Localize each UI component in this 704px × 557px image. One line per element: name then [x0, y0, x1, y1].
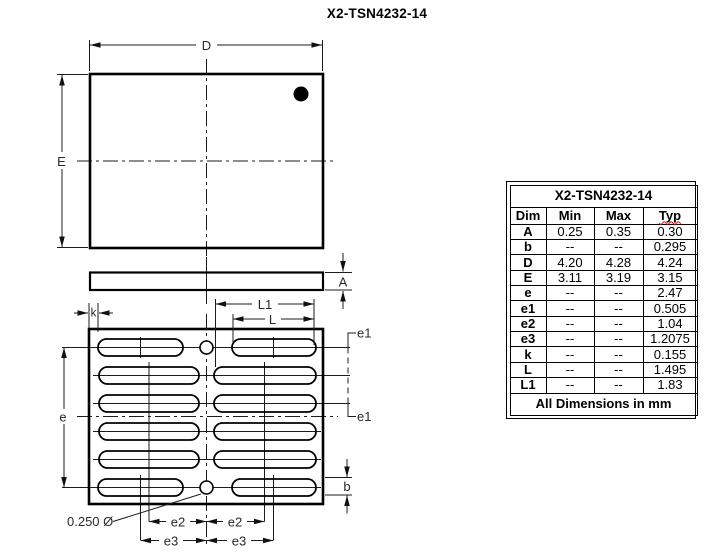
max-cell: 3.19 [594, 270, 643, 285]
index-hole-bottom [200, 481, 213, 494]
min-cell: 4.20 [546, 255, 594, 270]
min-cell: -- [546, 332, 594, 347]
max-cell: 4.28 [594, 255, 643, 270]
min-cell: -- [546, 239, 594, 254]
table-row: e3----1.2075 [510, 332, 697, 347]
dim-cell: e [510, 285, 546, 300]
dim-cell: k [510, 347, 546, 362]
typ-cell: 4.24 [643, 255, 697, 270]
dim-e1: e1 e1 [348, 326, 371, 425]
max-cell: -- [594, 316, 643, 331]
table-row: L1----1.83 [510, 378, 697, 393]
table-row: e2----1.04 [510, 316, 697, 331]
side-view: A [90, 253, 352, 309]
dim-cell: e2 [510, 316, 546, 331]
min-cell: -- [546, 285, 594, 300]
dimensions-table-frame: X2-TSN4232-14 Dim Min Max Typ A0.250.350… [506, 181, 696, 419]
max-cell: -- [594, 378, 643, 393]
pin1-marker-dot [294, 87, 309, 102]
table-header-row: Dim Min Max Typ [510, 207, 697, 224]
typ-cell: 0.295 [643, 239, 697, 254]
max-cell: 0.35 [594, 224, 643, 239]
max-cell: -- [594, 347, 643, 362]
max-cell: -- [594, 301, 643, 316]
table-row: e----2.47 [510, 285, 697, 300]
min-cell: -- [546, 347, 594, 362]
dim-cell: e3 [510, 332, 546, 347]
dim-e: e [56, 348, 72, 488]
dim-label-e-cap: E [57, 154, 66, 169]
dim-cell: b [510, 239, 546, 254]
typ-cell: 3.15 [643, 270, 697, 285]
table-row: k----0.155 [510, 347, 697, 362]
max-cell: -- [594, 332, 643, 347]
index-hole-top [200, 341, 213, 354]
dim-b: b [325, 459, 352, 514]
dim-label-e2-left: e2 [171, 515, 185, 530]
bottom-view: k L1 L e [56, 296, 371, 549]
col-header-typ: Typ [643, 207, 697, 224]
col-header-max: Max [594, 207, 643, 224]
dimensions-table: X2-TSN4232-14 Dim Min Max Typ A0.250.350… [510, 185, 698, 416]
table-row: e1----0.505 [510, 301, 697, 316]
min-cell: -- [546, 316, 594, 331]
table-row: A0.250.350.30 [510, 224, 697, 239]
col-header-dim: Dim [510, 207, 546, 224]
leader-line [348, 404, 356, 417]
max-cell: -- [594, 362, 643, 377]
typ-cell: 0.505 [643, 301, 697, 316]
dim-cell: e1 [510, 301, 546, 316]
typ-cell: 2.47 [643, 285, 697, 300]
min-cell: 3.11 [546, 270, 594, 285]
dim-label-e3-left: e3 [164, 534, 178, 549]
dim-label-d: D [202, 38, 211, 53]
dim-cell: E [510, 270, 546, 285]
dim-cell: L1 [510, 378, 546, 393]
typ-cell: 1.04 [643, 316, 697, 331]
max-cell: -- [594, 239, 643, 254]
dim-label-l1: L1 [258, 297, 272, 312]
dim-A: A [325, 253, 352, 309]
max-cell: -- [594, 285, 643, 300]
min-cell: -- [546, 378, 594, 393]
typ-cell: 1.495 [643, 362, 697, 377]
dim-cell: A [510, 224, 546, 239]
dim-label-e: e [59, 410, 66, 425]
dim-cell: L [510, 362, 546, 377]
dim-label-e1-bottom: e1 [357, 409, 371, 424]
table-row: L----1.495 [510, 362, 697, 377]
dim-label-a: A [339, 275, 348, 290]
col-header-min: Min [546, 207, 594, 224]
typ-cell: 0.155 [643, 347, 697, 362]
col-header-typ-text: Typ [659, 208, 681, 223]
hole-diameter-label: 0.250 Ø [67, 514, 113, 529]
dim-k: k [74, 303, 113, 332]
min-cell: -- [546, 362, 594, 377]
dim-cell: D [510, 255, 546, 270]
dim-label-e1-top: e1 [357, 326, 371, 341]
dim-label-l: L [269, 312, 276, 327]
leader-line [348, 333, 356, 348]
min-cell: 0.25 [546, 224, 594, 239]
top-view: D E [53, 37, 336, 262]
table-title-row: X2-TSN4232-14 [510, 185, 697, 207]
datasheet-page: X2-TSN4232-14 D [0, 0, 704, 557]
table-footer-row: All Dimensions in mm [510, 393, 697, 415]
dim-label-e2-right: e2 [228, 515, 242, 530]
typ-cell: 0.30 [643, 224, 697, 239]
typ-cell: 1.2075 [643, 332, 697, 347]
min-cell: -- [546, 301, 594, 316]
table-row: D4.204.284.24 [510, 255, 697, 270]
typ-cell: 1.83 [643, 378, 697, 393]
table-title: X2-TSN4232-14 [510, 185, 697, 207]
table-row: b----0.295 [510, 239, 697, 254]
dim-label-k: k [91, 308, 97, 320]
table-row: E3.113.193.15 [510, 270, 697, 285]
dim-label-e3-right: e3 [232, 534, 246, 549]
dim-label-b: b [343, 479, 350, 494]
table-footer: All Dimensions in mm [510, 393, 697, 415]
